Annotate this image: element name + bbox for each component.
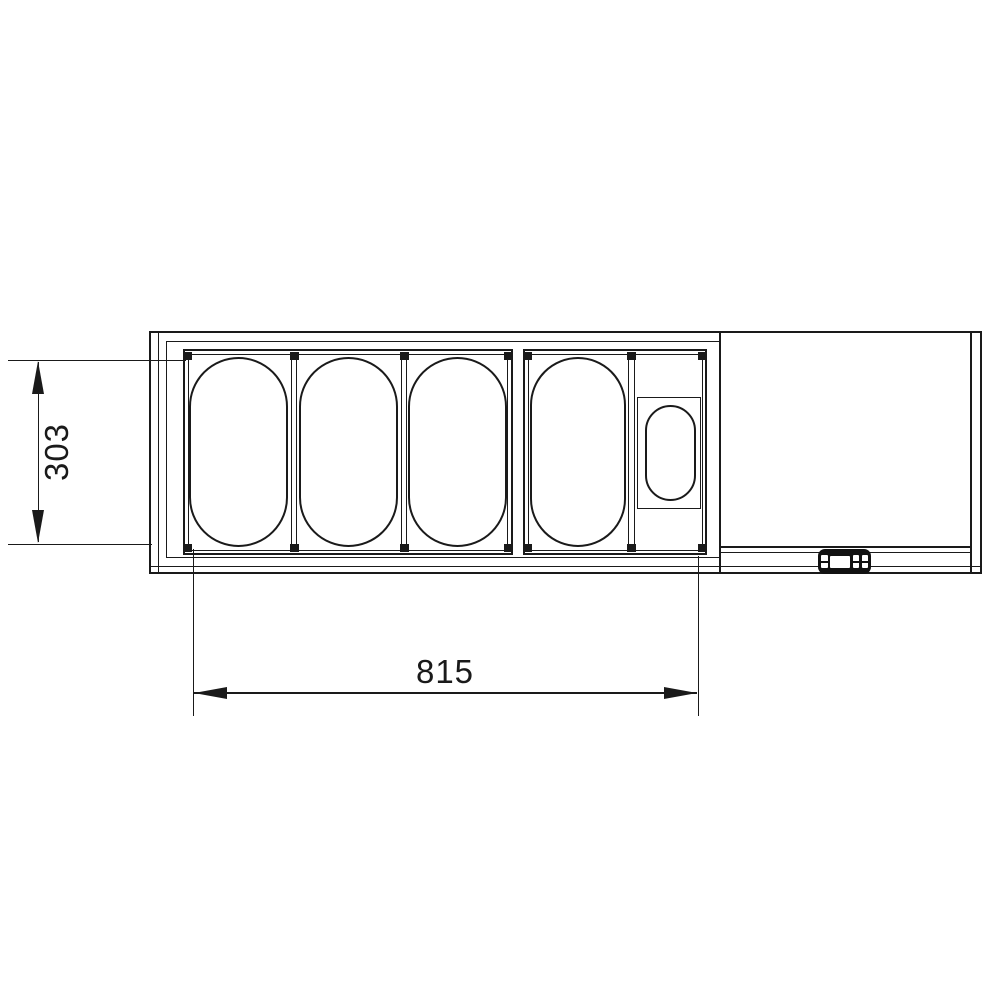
clip-tick	[627, 352, 636, 360]
control-panel	[818, 549, 871, 574]
dim-303-extension-bottom	[8, 544, 152, 545]
clip-tick	[525, 352, 532, 360]
temperature-display	[830, 556, 850, 568]
dim-303-arrow-up	[32, 361, 44, 394]
dim-303-arrow-down	[32, 510, 44, 543]
dim-815-label: 815	[385, 655, 505, 689]
clip-tick	[290, 544, 299, 552]
worktop-edge-left-line	[158, 333, 159, 572]
pan-3	[408, 357, 507, 547]
control-button-icon	[821, 555, 828, 568]
pan-divider	[401, 354, 408, 551]
worktop-edge-right-line	[970, 333, 972, 572]
dim-815-extension-right	[698, 556, 699, 716]
dim-303-label: 303	[40, 392, 74, 512]
pan-1	[189, 357, 288, 547]
housing-divider-line	[719, 332, 721, 572]
pan-divider	[291, 354, 298, 551]
pan-divider	[628, 354, 635, 551]
clip-tick	[400, 352, 409, 360]
housing-bottom-line-outer	[720, 546, 970, 548]
clip-tick	[504, 544, 511, 552]
small-pan	[645, 405, 696, 501]
pan-4	[530, 357, 627, 547]
control-button-icon	[862, 555, 869, 568]
pan-2	[299, 357, 398, 547]
dim-815-arrow-left	[194, 687, 227, 699]
clip-tick	[698, 352, 705, 360]
clip-tick	[185, 544, 192, 552]
technical-drawing-canvas: 303 815	[0, 0, 1000, 1000]
clip-tick	[698, 544, 705, 552]
clip-tick	[185, 352, 192, 360]
control-button-icon	[853, 555, 860, 568]
clip-tick	[504, 352, 511, 360]
clip-tick	[400, 544, 409, 552]
clip-tick	[627, 544, 636, 552]
dim-815-arrow-right	[664, 687, 697, 699]
clip-tick	[290, 352, 299, 360]
dim-815-line	[194, 692, 697, 693]
clip-tick	[525, 544, 532, 552]
